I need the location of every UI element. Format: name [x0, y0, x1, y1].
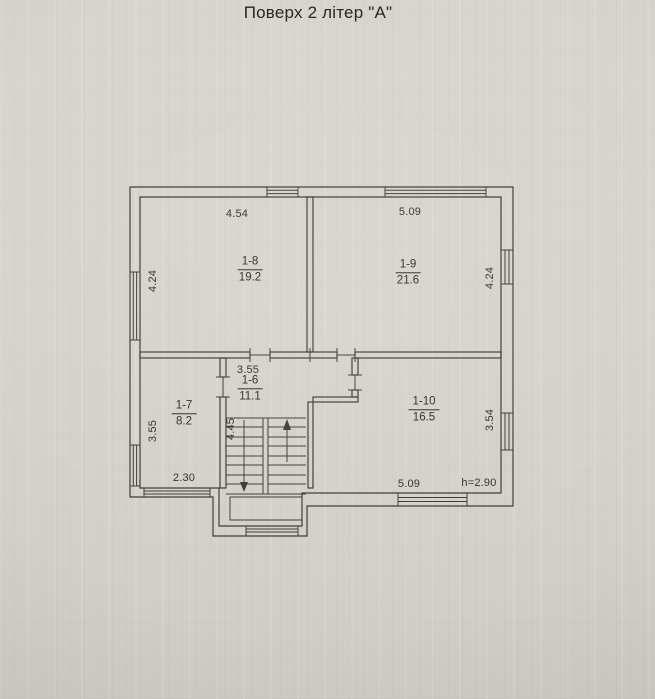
room-area: 8.2 [172, 416, 197, 429]
dim-stair-depth: 4.45 [225, 418, 237, 440]
room-number: 1-7 [172, 399, 197, 414]
staircase [226, 418, 306, 520]
interior-walls [140, 197, 501, 488]
room-label-1-9: 1-9 21.6 [396, 258, 421, 287]
dim-right-lower-height: 3.54 [484, 409, 496, 431]
dim-left-upper-height: 4.24 [147, 270, 159, 292]
dim-hall-width: 3.55 [237, 364, 259, 376]
room-label-1-10: 1-10 16.5 [408, 395, 439, 424]
dim-bottom-left-width: 2.30 [173, 472, 195, 484]
dim-top-right-width: 5.09 [399, 206, 421, 218]
dim-ceiling-height: h=2.90 [461, 477, 496, 489]
room-number: 1-8 [238, 255, 263, 270]
room-number: 1-6 [238, 374, 263, 389]
room-label-1-6: 1-6 11.1 [238, 374, 263, 403]
dim-bottom-right-width: 5.09 [398, 478, 420, 490]
stair-landing [230, 497, 302, 520]
dim-top-left-width: 4.54 [226, 208, 248, 220]
dim-right-upper-height: 4.24 [484, 267, 496, 289]
room-number: 1-10 [408, 395, 439, 410]
room-area: 16.5 [408, 412, 439, 425]
room-area: 19.2 [238, 272, 263, 285]
dim-left-lower-height: 3.55 [147, 420, 159, 442]
room-area: 11.1 [238, 391, 263, 404]
room-label-1-8: 1-8 19.2 [238, 255, 263, 284]
room-number: 1-9 [396, 258, 421, 273]
room-label-1-7: 1-7 8.2 [172, 399, 197, 428]
floor-plan-drawing [0, 0, 655, 699]
room-area: 21.6 [396, 275, 421, 288]
floor-plan-photo: Поверх 2 літер "А" [0, 0, 655, 699]
